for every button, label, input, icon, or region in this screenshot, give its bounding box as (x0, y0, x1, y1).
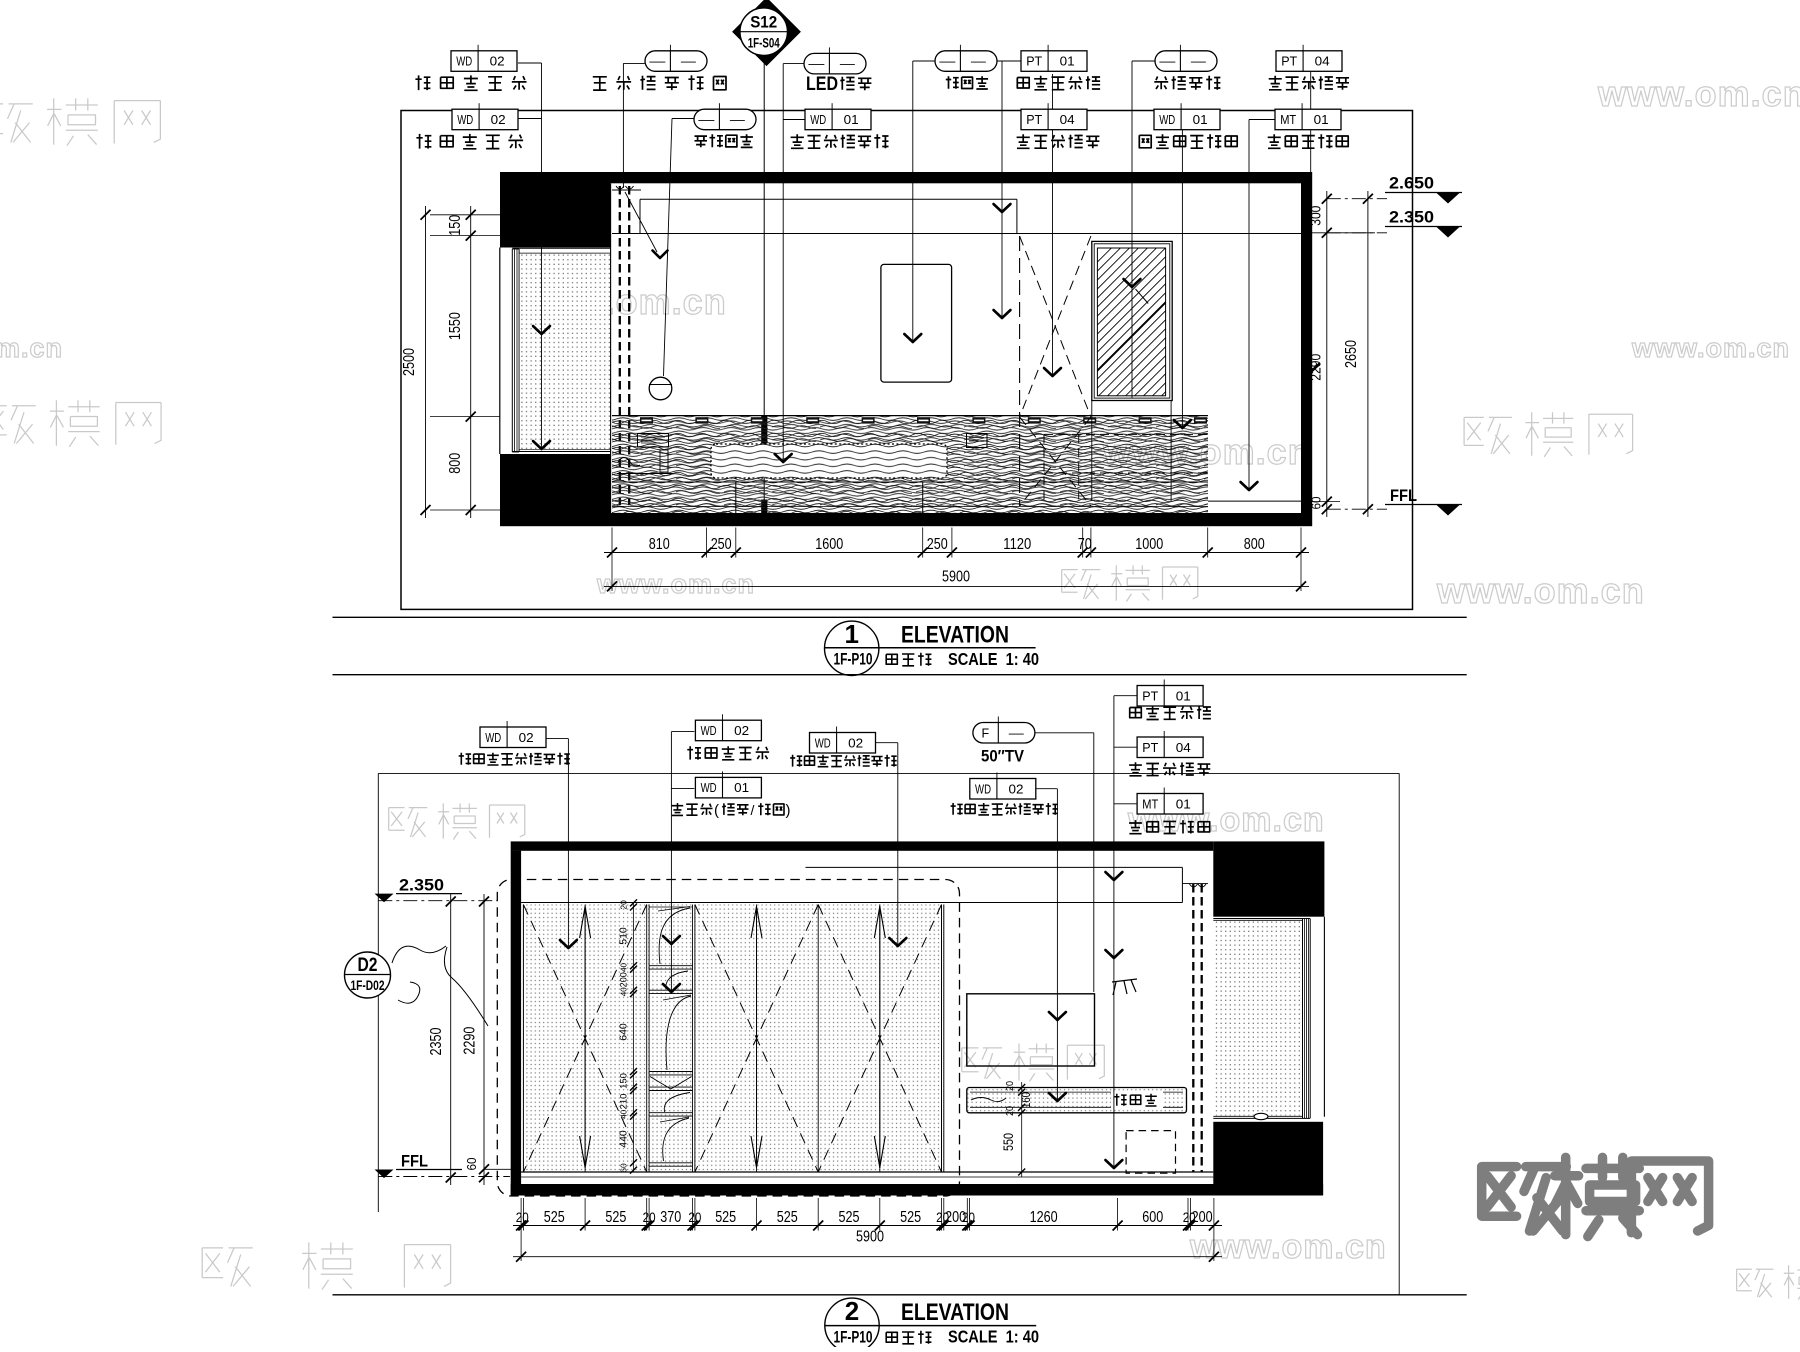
svg-text:D2: D2 (358, 955, 378, 976)
svg-text:200: 200 (619, 972, 629, 987)
svg-text:1F-P10: 1F-P10 (834, 650, 873, 669)
svg-text:1: 1 (844, 619, 858, 649)
svg-text:525: 525 (900, 1209, 921, 1226)
svg-text:525: 525 (777, 1209, 798, 1226)
svg-text:600: 600 (1142, 1209, 1163, 1226)
svg-text:01: 01 (1060, 55, 1075, 69)
svg-text:20: 20 (643, 1210, 656, 1225)
svg-text:SCALE 1: 40: SCALE 1: 40 (948, 649, 1039, 669)
svg-text:40: 40 (620, 1109, 629, 1118)
svg-text:–: – (698, 113, 714, 127)
svg-text:01: 01 (1176, 689, 1191, 703)
svg-text:20: 20 (1005, 1081, 1016, 1091)
svg-text:20: 20 (516, 1210, 529, 1225)
svg-text:www.om.cn: www.om.cn (1436, 570, 1645, 611)
svg-text:1260: 1260 (1030, 1209, 1058, 1226)
svg-text:60: 60 (464, 1158, 479, 1171)
svg-text:5900: 5900 (856, 1229, 884, 1246)
svg-text:www.om.cn: www.om.cn (1597, 73, 1800, 114)
svg-text:01: 01 (1176, 797, 1191, 811)
svg-text:www.om.cn: www.om.cn (596, 569, 755, 599)
svg-text:2650: 2650 (1343, 340, 1360, 368)
svg-text:WD: WD (485, 731, 501, 745)
svg-text:40: 40 (620, 962, 629, 971)
svg-text:150: 150 (447, 214, 464, 235)
svg-text:02: 02 (490, 55, 505, 69)
svg-text:210: 210 (619, 1094, 630, 1110)
svg-text:www.om.cn: www.om.cn (1189, 1228, 1387, 1266)
svg-text:www.om.cn: www.om.cn (1631, 333, 1790, 363)
svg-text:40: 40 (620, 987, 629, 996)
svg-text:–: – (971, 55, 986, 69)
svg-text:02: 02 (519, 731, 534, 745)
svg-text:PT: PT (1142, 689, 1158, 703)
svg-text:300: 300 (1309, 206, 1325, 226)
svg-text:SCALE 1: 40: SCALE 1: 40 (948, 1327, 1039, 1347)
svg-text:LED: LED (806, 74, 838, 95)
svg-text:–: – (939, 55, 955, 69)
svg-text:/: / (751, 802, 755, 818)
svg-text:250: 250 (711, 536, 732, 553)
svg-text:PT: PT (1142, 741, 1158, 755)
svg-text:FFL: FFL (401, 1153, 428, 1171)
svg-text:02: 02 (1009, 782, 1024, 796)
svg-text:1600: 1600 (815, 536, 843, 553)
svg-text:01: 01 (1193, 113, 1208, 127)
svg-text:200: 200 (1192, 1209, 1213, 1226)
svg-text:525: 525 (715, 1209, 736, 1226)
svg-text:–: – (730, 113, 745, 127)
svg-text:01: 01 (844, 113, 859, 127)
svg-text:MT: MT (1142, 797, 1158, 811)
svg-text:): ) (786, 802, 791, 819)
svg-text:525: 525 (839, 1209, 860, 1226)
svg-text:01: 01 (1314, 113, 1329, 127)
svg-text:04: 04 (1176, 741, 1191, 755)
svg-text:440: 440 (618, 1130, 630, 1148)
svg-text:PT: PT (1026, 55, 1042, 69)
svg-text:525: 525 (605, 1209, 626, 1226)
svg-text:20: 20 (619, 900, 629, 910)
svg-text:WD: WD (1159, 113, 1175, 127)
svg-text:2: 2 (845, 1296, 859, 1326)
svg-text:ELEVATION: ELEVATION (901, 1299, 1009, 1326)
svg-text:04: 04 (1315, 55, 1330, 69)
svg-text:–: – (681, 55, 696, 69)
svg-text:04: 04 (1060, 113, 1075, 127)
svg-text:2.350: 2.350 (1389, 209, 1434, 227)
svg-text:WD: WD (701, 724, 717, 738)
svg-text:01: 01 (734, 781, 749, 795)
svg-text:250: 250 (927, 536, 948, 553)
svg-text:1F-S04: 1F-S04 (748, 36, 780, 51)
svg-text:WD: WD (457, 113, 473, 127)
svg-text:FFL: FFL (1390, 487, 1417, 505)
svg-text:70: 70 (1078, 536, 1092, 553)
svg-text:WD: WD (975, 782, 991, 796)
svg-text:60: 60 (619, 1163, 629, 1173)
svg-text:510: 510 (618, 927, 630, 945)
svg-text:800: 800 (447, 453, 464, 474)
svg-text:–: – (808, 57, 824, 71)
svg-text:WD: WD (810, 113, 826, 127)
svg-text:1550: 1550 (447, 312, 464, 340)
svg-text:www.om.cn: www.om.cn (0, 333, 63, 363)
svg-text:S12: S12 (750, 13, 777, 32)
svg-text:640: 640 (618, 1023, 630, 1041)
svg-text:525: 525 (544, 1209, 565, 1226)
svg-text:20: 20 (962, 1210, 975, 1225)
svg-text:1120: 1120 (1003, 536, 1031, 553)
svg-text:800: 800 (1244, 536, 1265, 553)
svg-text:WD: WD (815, 736, 831, 750)
svg-text:02: 02 (848, 736, 863, 750)
svg-text:(: ( (714, 802, 719, 819)
svg-text:2350: 2350 (428, 1027, 445, 1055)
svg-text:PT: PT (1281, 55, 1297, 69)
svg-text:20: 20 (688, 1210, 701, 1225)
svg-text:1000: 1000 (1135, 536, 1163, 553)
svg-text:–: – (1191, 55, 1206, 69)
svg-text:60: 60 (1309, 497, 1324, 510)
svg-text:2500: 2500 (401, 348, 418, 376)
svg-text:5900: 5900 (942, 569, 970, 586)
svg-text:2.350: 2.350 (399, 877, 444, 895)
svg-text:1F-P10: 1F-P10 (834, 1328, 873, 1347)
svg-text:–: – (840, 57, 855, 71)
svg-text:MT: MT (1280, 113, 1296, 127)
svg-text:2.650: 2.650 (1389, 175, 1434, 193)
svg-text:WD: WD (701, 781, 717, 795)
svg-text:–: – (1159, 55, 1175, 69)
svg-text:1F-D02: 1F-D02 (351, 978, 385, 993)
svg-text:160: 160 (1019, 1092, 1033, 1108)
svg-text:370: 370 (660, 1209, 681, 1226)
svg-text:–: – (649, 55, 665, 69)
svg-text:150: 150 (619, 1073, 630, 1089)
svg-text:ELEVATION: ELEVATION (901, 622, 1009, 649)
svg-text:50″TV: 50″TV (981, 747, 1025, 766)
svg-text:2290: 2290 (462, 1026, 479, 1054)
svg-text:–: – (1009, 726, 1024, 740)
svg-text:02: 02 (734, 724, 749, 738)
svg-text:2290: 2290 (1309, 354, 1325, 381)
svg-text:20: 20 (1005, 1106, 1016, 1116)
svg-text:550: 550 (1001, 1133, 1016, 1151)
svg-text:810: 810 (649, 536, 670, 553)
svg-text:02: 02 (491, 113, 506, 127)
svg-text:WD: WD (456, 55, 472, 69)
svg-text:PT: PT (1026, 113, 1042, 127)
svg-text:F: F (981, 726, 989, 740)
